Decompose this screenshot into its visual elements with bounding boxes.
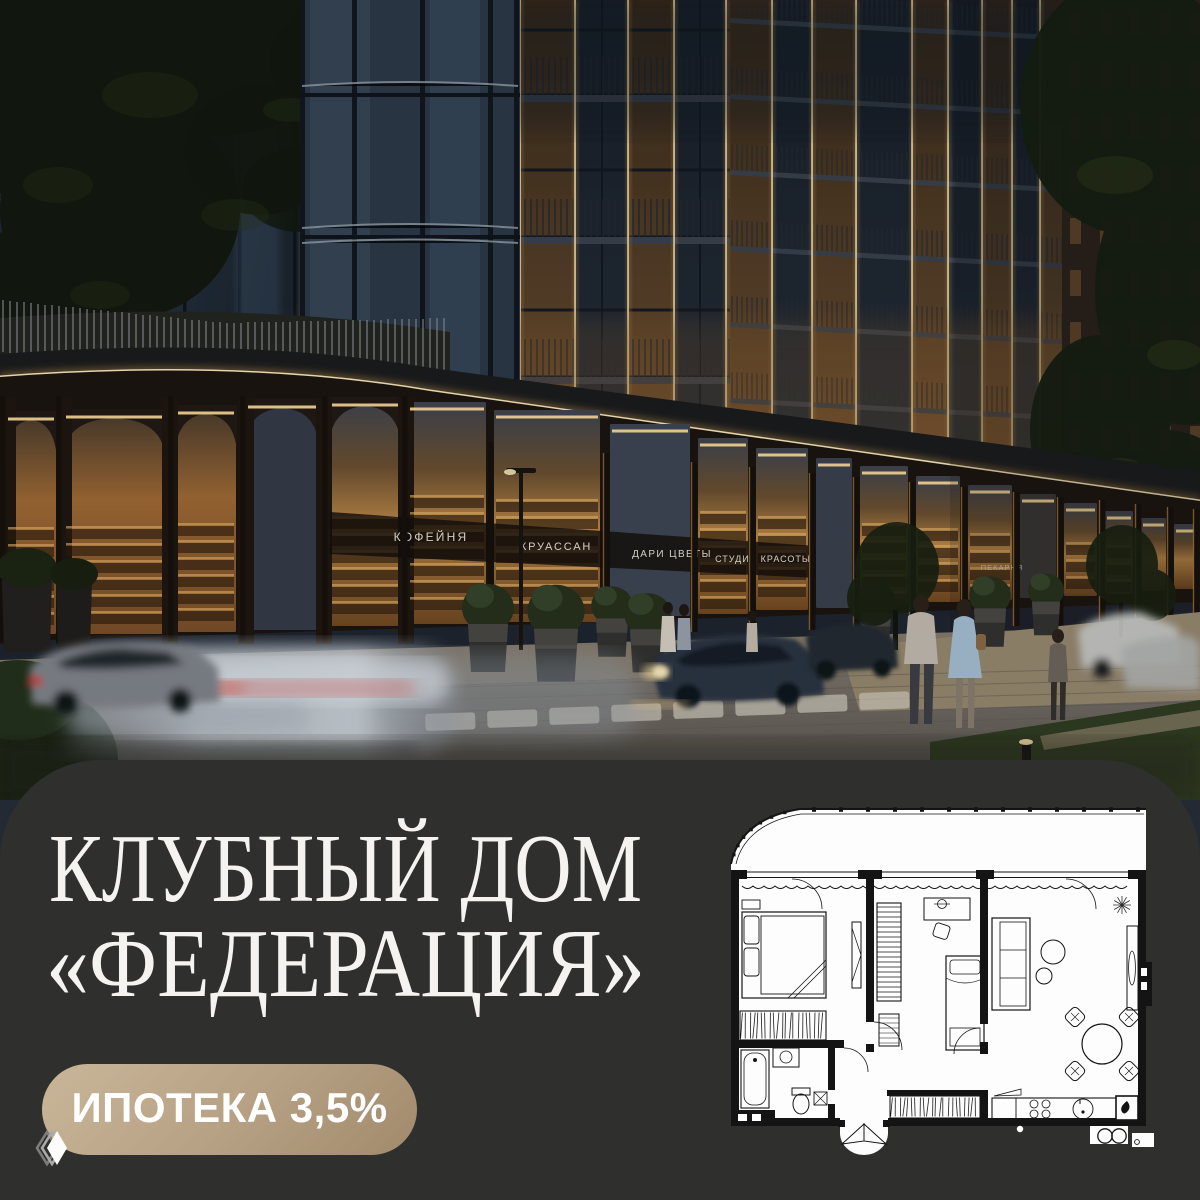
svg-text:КЛУБНЫЙ ДОМ: КЛУБНЫЙ ДОМ — [49, 815, 642, 922]
svg-text:«ФЕДЕРАЦИЯ»: «ФЕДЕРАЦИЯ» — [46, 910, 645, 1017]
